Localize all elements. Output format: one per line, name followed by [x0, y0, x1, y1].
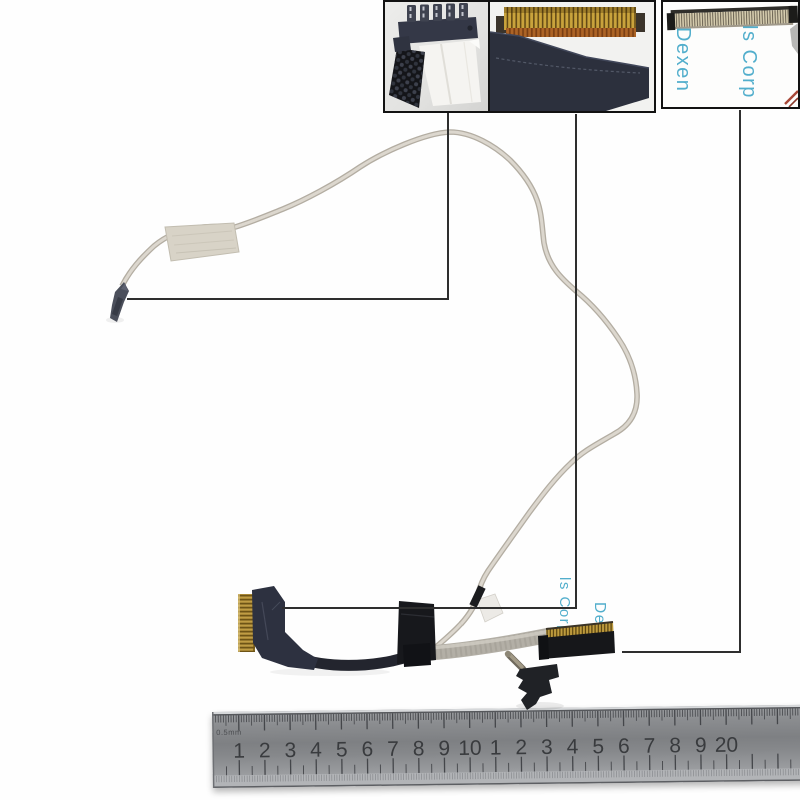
connector-fabric-wrap [252, 586, 318, 670]
board-connector [538, 622, 615, 660]
black-tape-wrap [397, 601, 436, 667]
cable-overlay [0, 0, 800, 800]
callout-lines [127, 110, 740, 652]
callout-line-right [622, 110, 740, 652]
thin-cable [122, 132, 637, 647]
foil-tape-patch [165, 223, 239, 261]
cable-tip-connector [110, 282, 129, 322]
product-photo: ls Corp Dexen 0.5mm 12345678910123456789… [0, 0, 800, 800]
display-connector [238, 586, 318, 670]
screw-pin [505, 651, 523, 669]
